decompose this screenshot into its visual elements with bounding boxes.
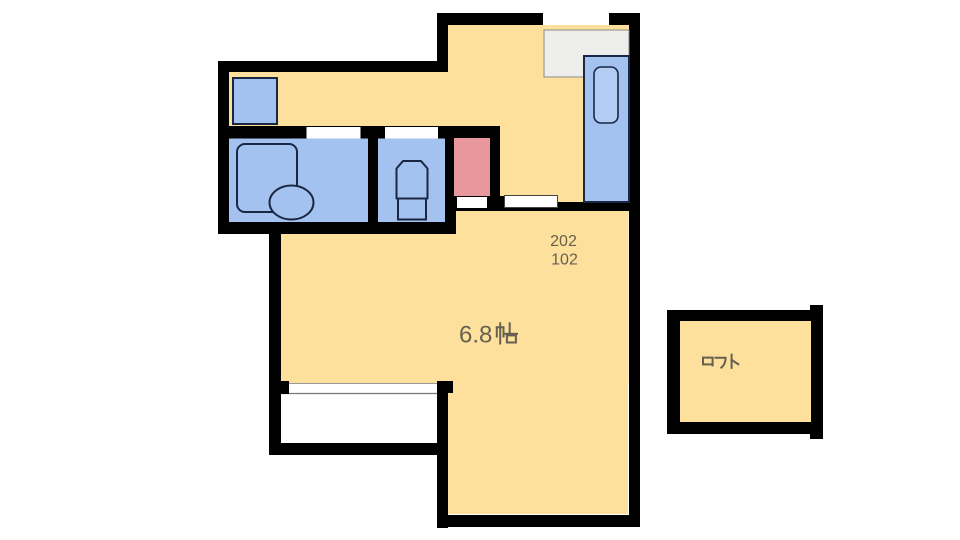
svg-text:202: 202 — [550, 233, 577, 250]
svg-text:6.8: 6.8 — [459, 322, 492, 349]
svg-text:102: 102 — [551, 252, 578, 269]
